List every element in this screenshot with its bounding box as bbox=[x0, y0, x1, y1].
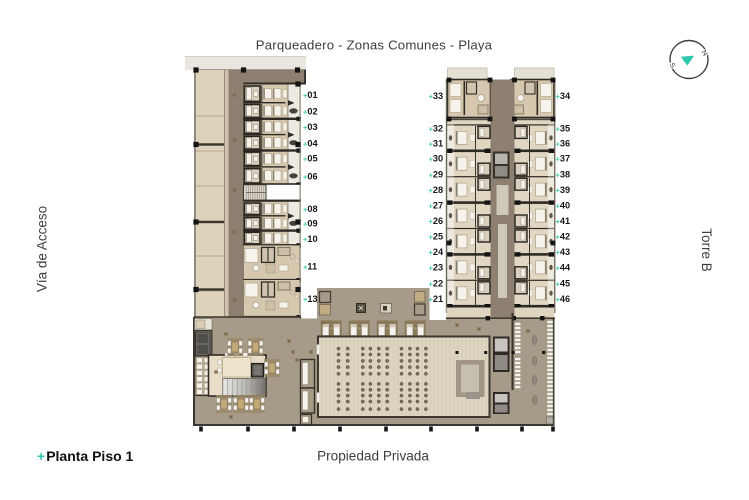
svg-text:+08: +08 bbox=[303, 204, 318, 214]
svg-text:+Planta Piso 1: +Planta Piso 1 bbox=[37, 448, 134, 464]
svg-text:+03: +03 bbox=[303, 122, 318, 132]
svg-text:+36: +36 bbox=[556, 138, 571, 148]
svg-text:+39: +39 bbox=[556, 185, 571, 195]
svg-text:+44: +44 bbox=[556, 263, 572, 273]
svg-text:+34: +34 bbox=[556, 91, 572, 101]
svg-text:+06: +06 bbox=[303, 171, 318, 181]
svg-text:+30: +30 bbox=[429, 154, 444, 164]
svg-text:+28: +28 bbox=[429, 185, 444, 195]
svg-text:Vía de Acceso: Vía de Acceso bbox=[35, 206, 50, 292]
svg-text:+26: +26 bbox=[429, 216, 444, 226]
svg-text:+09: +09 bbox=[303, 218, 318, 228]
svg-text:+37: +37 bbox=[556, 154, 571, 164]
svg-text:+33: +33 bbox=[429, 91, 444, 101]
svg-text:+22: +22 bbox=[429, 278, 444, 288]
svg-text:+27: +27 bbox=[429, 201, 444, 211]
svg-text:+29: +29 bbox=[429, 170, 444, 180]
svg-text:+05: +05 bbox=[303, 154, 318, 164]
svg-text:+35: +35 bbox=[556, 123, 571, 133]
svg-text:+21: +21 bbox=[429, 294, 444, 304]
svg-text:+24: +24 bbox=[429, 247, 445, 257]
svg-text:+46: +46 bbox=[556, 294, 571, 304]
svg-text:Torre B: Torre B bbox=[699, 228, 714, 272]
svg-text:+32: +32 bbox=[429, 123, 444, 133]
svg-text:+41: +41 bbox=[556, 216, 571, 226]
svg-text:Parqueadero - Zonas Comunes -: Parqueadero - Zonas Comunes - Playa bbox=[256, 38, 493, 53]
svg-text:+42: +42 bbox=[556, 231, 571, 241]
svg-text:+40: +40 bbox=[556, 201, 571, 211]
svg-text:+02: +02 bbox=[303, 107, 318, 117]
svg-text:+43: +43 bbox=[556, 247, 571, 257]
svg-text:Propiedad Privada: Propiedad Privada bbox=[317, 449, 429, 464]
svg-text:+45: +45 bbox=[556, 278, 571, 288]
svg-text:+04: +04 bbox=[303, 138, 319, 148]
svg-text:+11: +11 bbox=[303, 262, 317, 272]
svg-text:+38: +38 bbox=[556, 170, 571, 180]
svg-text:+23: +23 bbox=[429, 263, 444, 273]
svg-text:+01: +01 bbox=[303, 90, 318, 100]
svg-text:+13: +13 bbox=[303, 294, 318, 304]
svg-text:+10: +10 bbox=[303, 234, 318, 244]
svg-text:+25: +25 bbox=[429, 231, 444, 241]
svg-text:+31: +31 bbox=[429, 138, 444, 148]
